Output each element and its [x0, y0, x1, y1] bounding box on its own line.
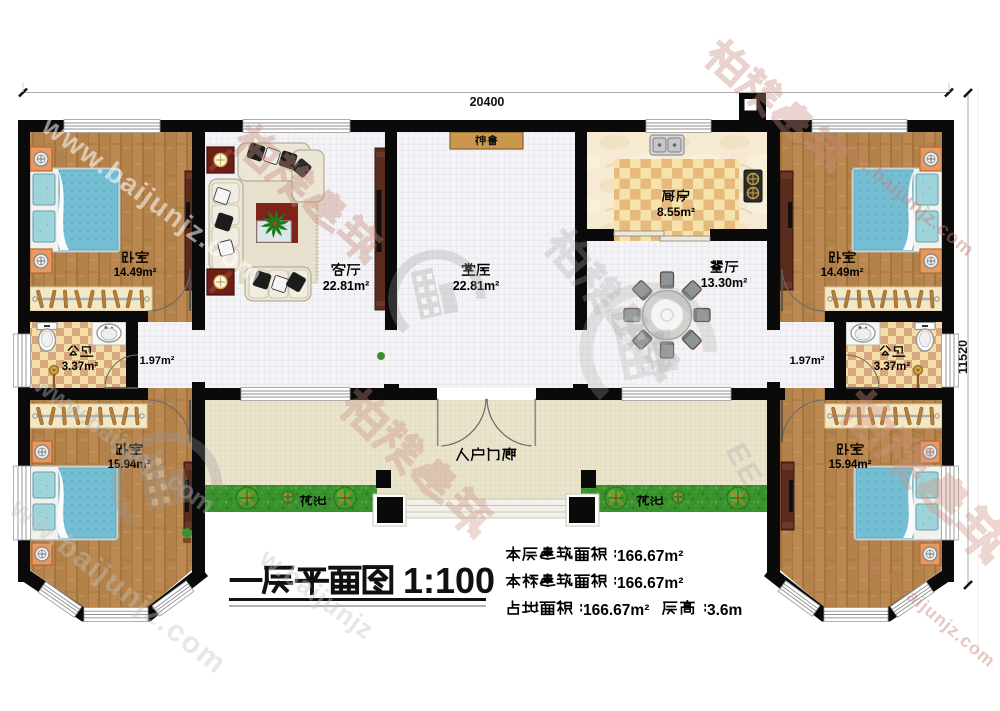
svg-text:1:100: 1:100 — [403, 560, 495, 601]
svg-text:13.30m²: 13.30m² — [701, 276, 748, 290]
svg-text:1.97m²: 1.97m² — [790, 355, 825, 367]
svg-text:8.55m²: 8.55m² — [657, 205, 695, 219]
svg-text:166.67m²: 166.67m² — [617, 575, 683, 592]
svg-text:14.49m²: 14.49m² — [821, 267, 864, 279]
svg-text:15.94m²: 15.94m² — [829, 459, 872, 471]
svg-text:22.81m²: 22.81m² — [323, 279, 370, 293]
svg-text:14.49m²: 14.49m² — [114, 267, 157, 279]
svg-text:166.67m²: 166.67m² — [583, 602, 649, 619]
svg-text:3.37m²: 3.37m² — [62, 361, 99, 373]
svg-text:20400: 20400 — [470, 95, 505, 109]
svg-text:1.97m²: 1.97m² — [140, 355, 175, 367]
svg-text:3.37m²: 3.37m² — [874, 361, 911, 373]
svg-text:166.67m²: 166.67m² — [617, 548, 683, 565]
svg-text:3.6m: 3.6m — [707, 602, 742, 619]
